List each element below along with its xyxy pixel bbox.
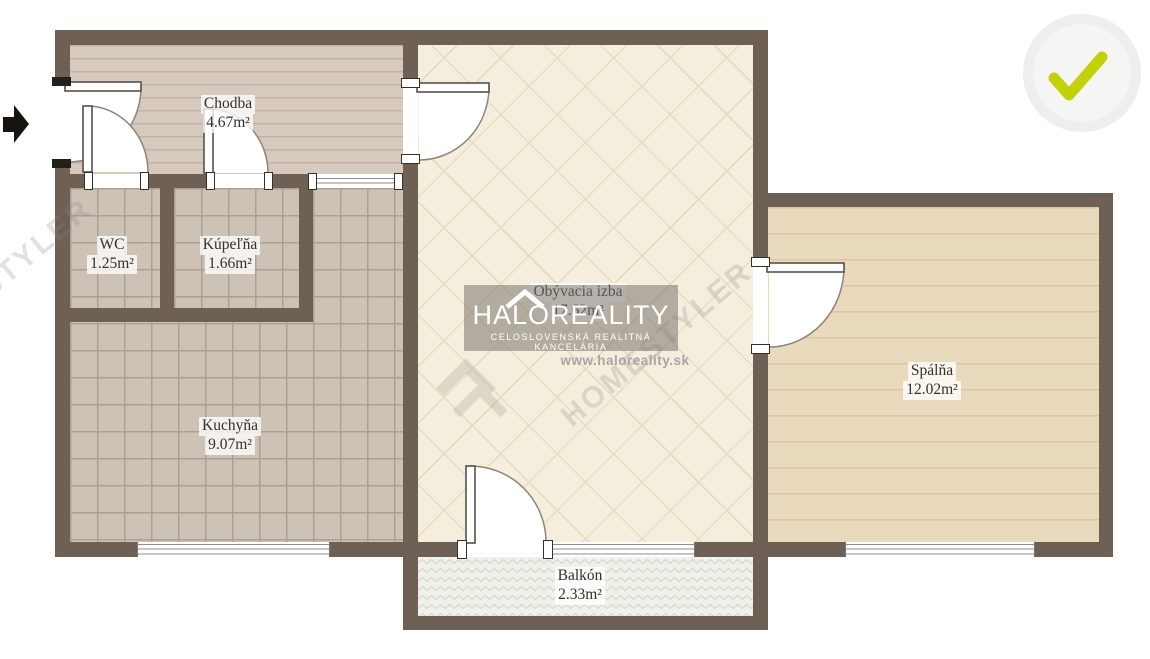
living-door-swing xyxy=(419,87,489,160)
entrance-door-leaf xyxy=(65,82,141,91)
door-jamb xyxy=(751,344,770,354)
faint-roof-logo-icon xyxy=(436,352,508,430)
room-label-wc: WC 1.25m² xyxy=(62,236,162,274)
door-jamb xyxy=(751,257,770,267)
door-jamb xyxy=(206,172,215,190)
room-label-kuchyna: Kuchyňa 9.07m² xyxy=(150,417,310,455)
living-door-leaf xyxy=(417,83,489,92)
watermark-url: www.haloreality.sk xyxy=(560,353,690,368)
room-area: 2.33m² xyxy=(555,586,605,605)
door-jamb xyxy=(401,154,420,164)
floor-plan: HOMESTYLER HOMESTYLER xyxy=(0,0,1150,659)
watermark-brand: HALOREALITY xyxy=(464,302,678,329)
door-jamb xyxy=(84,172,93,190)
room-area: 9.07m² xyxy=(205,436,255,455)
room-area: 12.02m² xyxy=(903,381,961,400)
room-area: 1.66m² xyxy=(205,255,255,274)
entrance-jamb xyxy=(52,77,71,86)
check-icon xyxy=(1023,14,1141,132)
entrance-arrow-icon xyxy=(3,117,14,132)
bedroom-door-leaf xyxy=(767,263,844,272)
door-jamb xyxy=(543,540,553,559)
door-jamb xyxy=(394,173,403,190)
verified-badge xyxy=(1023,14,1141,132)
door-jamb xyxy=(140,172,149,190)
door-jamb xyxy=(457,540,467,559)
bedroom-door-swing xyxy=(769,267,844,347)
room-area: 1.25m² xyxy=(87,255,137,274)
roof-icon xyxy=(505,289,545,309)
balcony-door-swing xyxy=(470,466,546,542)
room-label-spalna: Spálňa 12.02m² xyxy=(852,362,1012,400)
room-name: Kuchyňa xyxy=(199,417,261,436)
door-jamb xyxy=(308,173,317,190)
wc-door-leaf xyxy=(83,106,92,172)
room-name: Chodba xyxy=(201,95,255,114)
entrance-jamb xyxy=(52,159,71,168)
door-jamb xyxy=(264,172,273,190)
door-jamb xyxy=(401,78,420,88)
room-label-chodba: Chodba 4.67m² xyxy=(150,95,306,133)
room-name: WC xyxy=(97,236,128,255)
room-name: Balkón xyxy=(555,567,606,586)
room-area: 4.67m² xyxy=(203,114,253,133)
wc-door-swing xyxy=(87,106,148,172)
entrance-arrow-icon xyxy=(14,105,29,143)
room-name: Spálňa xyxy=(908,362,956,381)
room-name: Kúpeľňa xyxy=(200,236,261,255)
room-label-kupelna: Kúpeľňa 1.66m² xyxy=(168,236,292,274)
watermark-subtitle: CELOSLOVENSKÁ REALITNÁ KANCELÁRIA xyxy=(464,332,678,352)
balcony-door-leaf xyxy=(466,466,475,543)
room-label-balkon: Balkón 2.33m² xyxy=(500,567,660,605)
watermark-box: HALOREALITY CELOSLOVENSKÁ REALITNÁ KANCE… xyxy=(464,285,678,351)
